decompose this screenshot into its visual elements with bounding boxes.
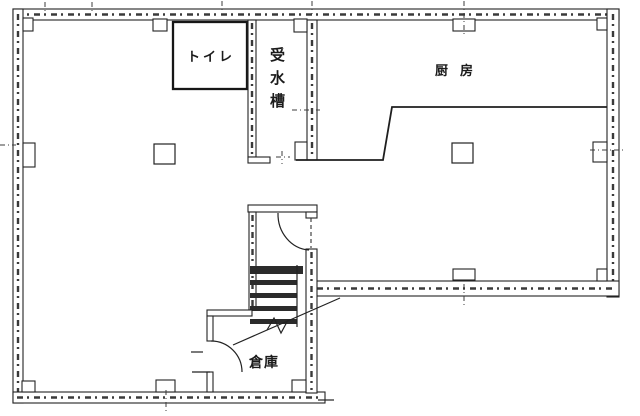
room-label-kitchen: 厨房 [435,64,485,77]
stair-treads [250,280,297,324]
storage-door-arc [211,341,242,372]
room-label-storage: 倉庫 [249,355,279,369]
floorplan-drawing [0,0,640,416]
room-label-water-tank: 受水槽 [269,47,284,116]
floorplan-canvas: トイレ 受水槽 厨房 倉庫 [0,0,640,416]
stair-door-arc [278,213,309,250]
stair-landing-edge [250,266,303,274]
room-label-toilet: トイレ [187,50,235,63]
